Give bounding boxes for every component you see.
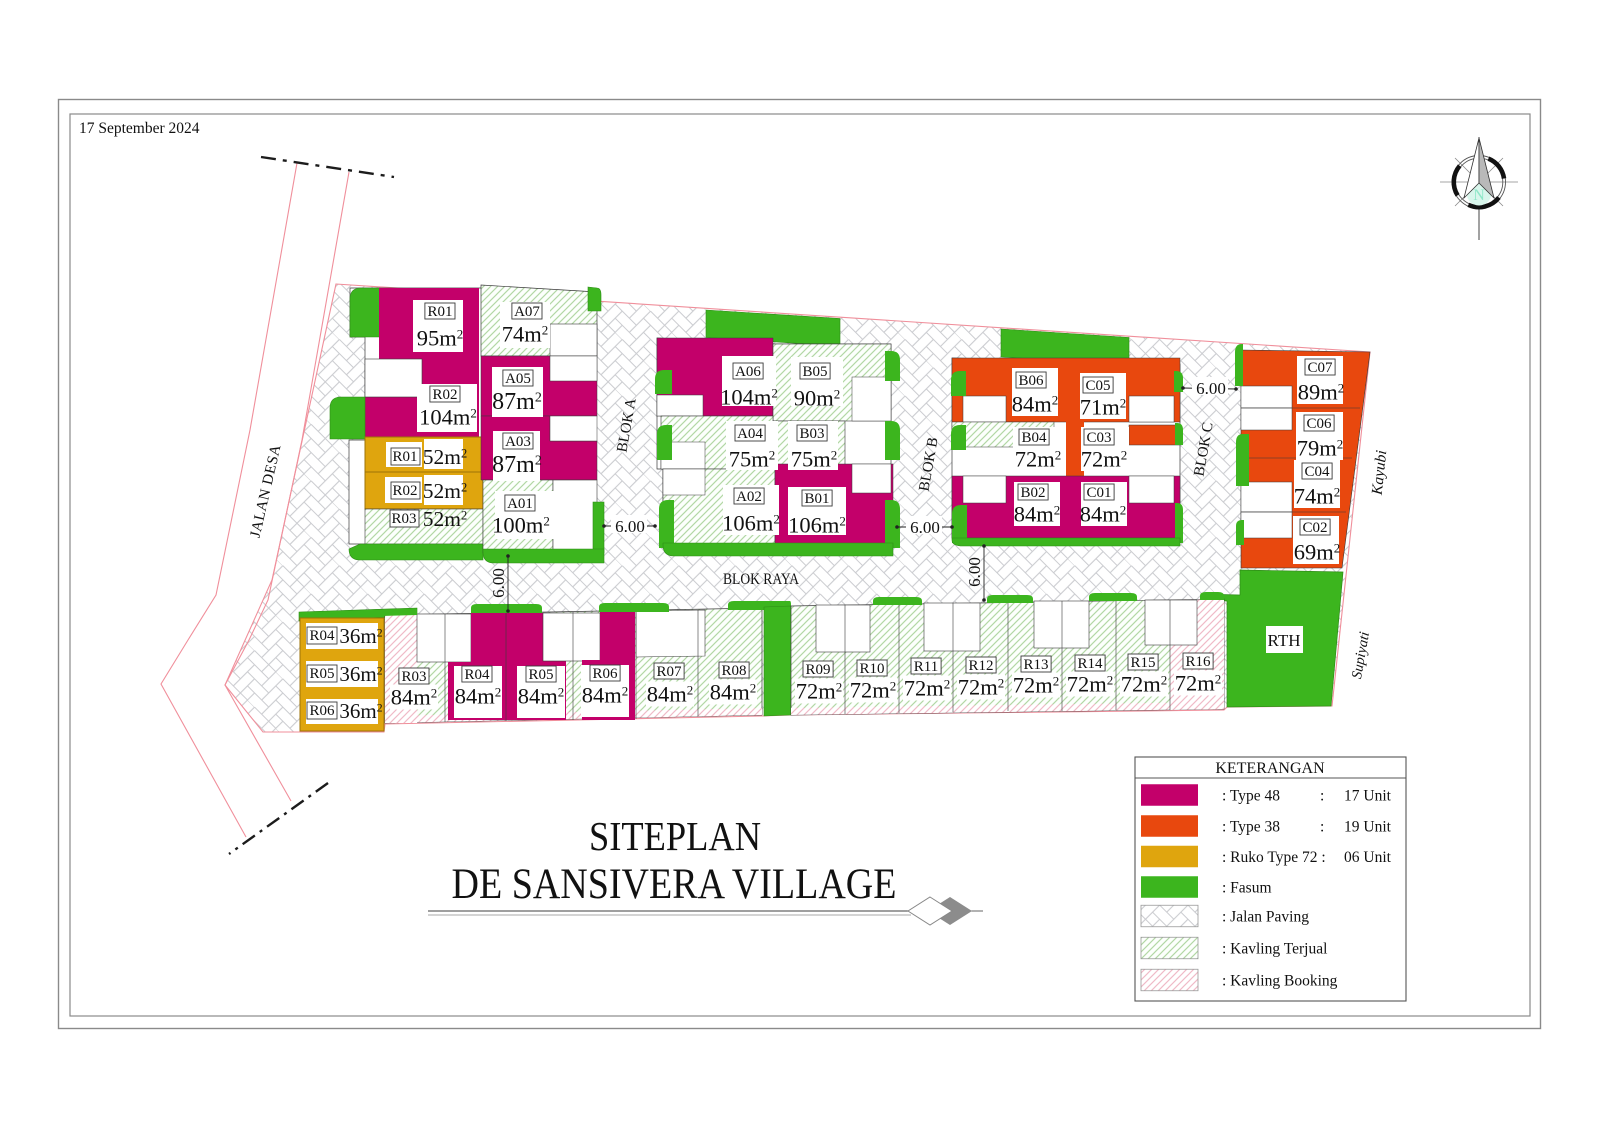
svg-text:: Kavling Terjual: : Kavling Terjual — [1222, 941, 1327, 958]
svg-text:C02: C02 — [1302, 520, 1327, 536]
svg-text:104m2: 104m2 — [720, 384, 778, 409]
svg-text:C03: C03 — [1086, 430, 1111, 446]
svg-text:72m2: 72m2 — [850, 677, 897, 702]
svg-text:BLOK RAYA: BLOK RAYA — [723, 571, 800, 588]
svg-text:R06: R06 — [592, 666, 618, 682]
svg-text:74m2: 74m2 — [1294, 483, 1341, 508]
svg-text:95m2: 95m2 — [417, 325, 464, 350]
svg-text:R05: R05 — [309, 666, 334, 682]
svg-text:R14: R14 — [1077, 656, 1103, 672]
svg-text:84m2: 84m2 — [455, 683, 502, 708]
svg-text:B04: B04 — [1021, 430, 1047, 446]
svg-text:: Type 38: : Type 38 — [1222, 819, 1280, 836]
svg-text:72m2: 72m2 — [958, 674, 1005, 699]
svg-text:6.00: 6.00 — [489, 568, 508, 598]
svg-text:R16: R16 — [1185, 654, 1211, 670]
svg-text:C01: C01 — [1086, 485, 1111, 501]
svg-text:87m2: 87m2 — [492, 389, 542, 415]
svg-text:R07: R07 — [656, 664, 682, 680]
svg-text:6.00: 6.00 — [615, 517, 645, 536]
svg-text:84m2: 84m2 — [1080, 501, 1127, 526]
svg-text:R12: R12 — [968, 658, 993, 674]
svg-text:17 Unit: 17 Unit — [1344, 788, 1392, 805]
svg-text:06 Unit: 06 Unit — [1344, 849, 1392, 866]
svg-text:R01: R01 — [392, 449, 417, 465]
svg-text:R04: R04 — [464, 667, 490, 683]
svg-text:89m2: 89m2 — [1298, 379, 1345, 404]
svg-text:C05: C05 — [1085, 378, 1110, 394]
svg-text:69m2: 69m2 — [1294, 539, 1341, 564]
svg-text:R01: R01 — [427, 304, 452, 320]
svg-text:R02: R02 — [432, 387, 457, 403]
svg-text:72m2: 72m2 — [1015, 446, 1062, 471]
svg-text:6.00: 6.00 — [965, 557, 984, 587]
svg-text:R11: R11 — [914, 659, 938, 675]
svg-text:6.00: 6.00 — [910, 518, 940, 537]
svg-text:19 Unit: 19 Unit — [1344, 819, 1392, 836]
svg-text::: : — [1320, 788, 1324, 805]
svg-text:74m2: 74m2 — [502, 321, 549, 346]
svg-text:84m2: 84m2 — [710, 679, 757, 704]
svg-text:A07: A07 — [514, 304, 540, 320]
svg-text:R03: R03 — [391, 511, 416, 527]
svg-text:84m2: 84m2 — [518, 683, 565, 708]
svg-text:72m2: 72m2 — [796, 678, 843, 703]
svg-text:A02: A02 — [736, 489, 762, 505]
svg-text:C04: C04 — [1304, 464, 1330, 480]
svg-text:72m2: 72m2 — [904, 675, 951, 700]
svg-text:A01: A01 — [507, 496, 533, 512]
svg-text:SITEPLAN: SITEPLAN — [589, 813, 761, 859]
svg-text:100m2: 100m2 — [492, 512, 550, 537]
svg-text:R05: R05 — [528, 667, 553, 683]
svg-text:106m2: 106m2 — [722, 510, 780, 535]
svg-text:B02: B02 — [1020, 485, 1045, 501]
svg-text:C07: C07 — [1307, 360, 1333, 376]
svg-text:75m2: 75m2 — [791, 446, 838, 471]
svg-text:A04: A04 — [737, 426, 763, 442]
svg-text:B01: B01 — [804, 491, 829, 507]
svg-text:A05: A05 — [505, 371, 531, 387]
svg-text:90m2: 90m2 — [794, 385, 841, 410]
svg-text:R08: R08 — [721, 663, 746, 679]
svg-text:36m2: 36m2 — [339, 624, 382, 648]
svg-text:52m2: 52m2 — [423, 445, 467, 469]
svg-text:: Fasum: : Fasum — [1222, 880, 1272, 897]
svg-text:R09: R09 — [805, 662, 830, 678]
svg-text:84m2: 84m2 — [582, 682, 629, 707]
svg-text:52m2: 52m2 — [423, 507, 467, 531]
svg-text:RTH: RTH — [1268, 631, 1301, 650]
svg-text:6.00: 6.00 — [1196, 379, 1226, 398]
svg-text:84m2: 84m2 — [1012, 391, 1059, 416]
svg-text:104m2: 104m2 — [419, 404, 477, 429]
svg-text:36m2: 36m2 — [339, 699, 382, 723]
svg-text:87m2: 87m2 — [492, 452, 542, 478]
svg-text:Kayubi: Kayubi — [1369, 449, 1391, 496]
svg-text:72m2: 72m2 — [1121, 671, 1168, 696]
svg-text:R15: R15 — [1130, 655, 1155, 671]
svg-text:KETERANGAN: KETERANGAN — [1215, 760, 1325, 777]
svg-text:JALAN DESA: JALAN DESA — [248, 443, 285, 540]
svg-text:72m2: 72m2 — [1013, 672, 1060, 697]
svg-text:: Type 48: : Type 48 — [1222, 788, 1280, 805]
svg-text:: Kavling Booking: : Kavling Booking — [1222, 973, 1338, 990]
svg-text:52m2: 52m2 — [423, 479, 467, 503]
svg-text:71m2: 71m2 — [1080, 394, 1127, 419]
svg-text:72m2: 72m2 — [1081, 446, 1128, 471]
svg-text:R02: R02 — [392, 483, 417, 499]
svg-text:: Jalan Paving: : Jalan Paving — [1222, 909, 1309, 926]
svg-text:36m2: 36m2 — [339, 662, 382, 686]
svg-text:B05: B05 — [802, 364, 827, 380]
svg-text:84m2: 84m2 — [1014, 501, 1061, 526]
svg-text:R03: R03 — [401, 669, 426, 685]
svg-text:R04: R04 — [309, 628, 335, 644]
svg-text:R06: R06 — [309, 703, 335, 719]
svg-text:84m2: 84m2 — [391, 684, 438, 709]
svg-text:C06: C06 — [1306, 416, 1332, 432]
svg-text:B03: B03 — [799, 426, 824, 442]
svg-text:B06: B06 — [1018, 373, 1044, 389]
svg-text:72m2: 72m2 — [1175, 670, 1222, 695]
svg-text:75m2: 75m2 — [729, 446, 776, 471]
svg-text:Supiyati: Supiyati — [1349, 631, 1373, 681]
svg-text:DE SANSIVERA VILLAGE: DE SANSIVERA VILLAGE — [452, 861, 897, 908]
svg-text:A06: A06 — [735, 364, 761, 380]
svg-text:: Ruko Type 72 :: : Ruko Type 72 : — [1222, 849, 1326, 866]
svg-text:84m2: 84m2 — [647, 681, 694, 706]
svg-text:R10: R10 — [859, 661, 884, 677]
svg-text:106m2: 106m2 — [788, 512, 846, 537]
svg-text:17 September 2024: 17 September 2024 — [79, 120, 200, 137]
svg-text:79m2: 79m2 — [1297, 435, 1344, 460]
svg-text:A03: A03 — [505, 434, 531, 450]
svg-text:N: N — [1473, 187, 1485, 204]
svg-text:72m2: 72m2 — [1067, 671, 1114, 696]
svg-text::: : — [1320, 819, 1324, 836]
svg-text:R13: R13 — [1023, 657, 1048, 673]
